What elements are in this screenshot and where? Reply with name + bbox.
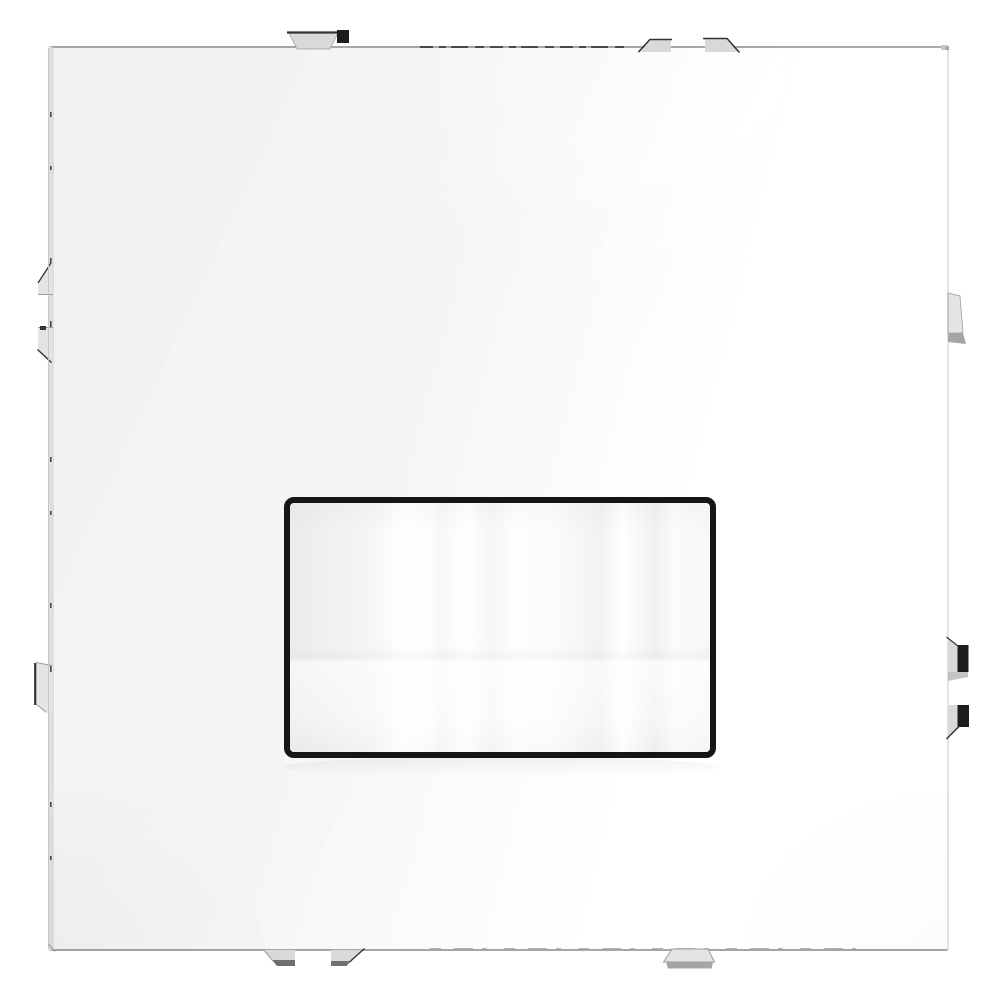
clip-right-mid-shadow: [948, 672, 968, 681]
clip-bottom-left-b: [331, 950, 364, 961]
bottom-left-corner-mark: [49, 944, 56, 952]
clip-left-upper: [38, 263, 52, 294]
product-photo: [0, 0, 1000, 1000]
clip-right-mid: [948, 638, 958, 672]
clip-bottom-left-b-shadow: [331, 961, 351, 966]
clip-bottom-center: [664, 949, 715, 962]
clip-right-mid-latch: [958, 645, 969, 672]
clip-top-left-latch: [337, 30, 349, 43]
clip-right-upper-shadow: [948, 333, 966, 344]
clip-bottom-center-shadow: [666, 962, 713, 969]
clip-right-lower-latch: [958, 705, 970, 727]
clip-bottom-left-a-shadow: [272, 960, 295, 966]
edge-seams: [49, 47, 857, 949]
top-clips: [287, 30, 740, 53]
top-right-corner-dot: [946, 47, 950, 51]
right-clips: [947, 293, 970, 739]
hardware-details: [0, 0, 1000, 1000]
corner-marks: [49, 45, 950, 952]
left-clips: [35, 263, 53, 713]
clip-right-upper: [948, 293, 963, 333]
clip-left-mid-notch: [40, 326, 46, 330]
clip-left-lower: [36, 663, 52, 712]
bottom-clips: [263, 949, 715, 969]
clip-top-left: [289, 33, 338, 49]
